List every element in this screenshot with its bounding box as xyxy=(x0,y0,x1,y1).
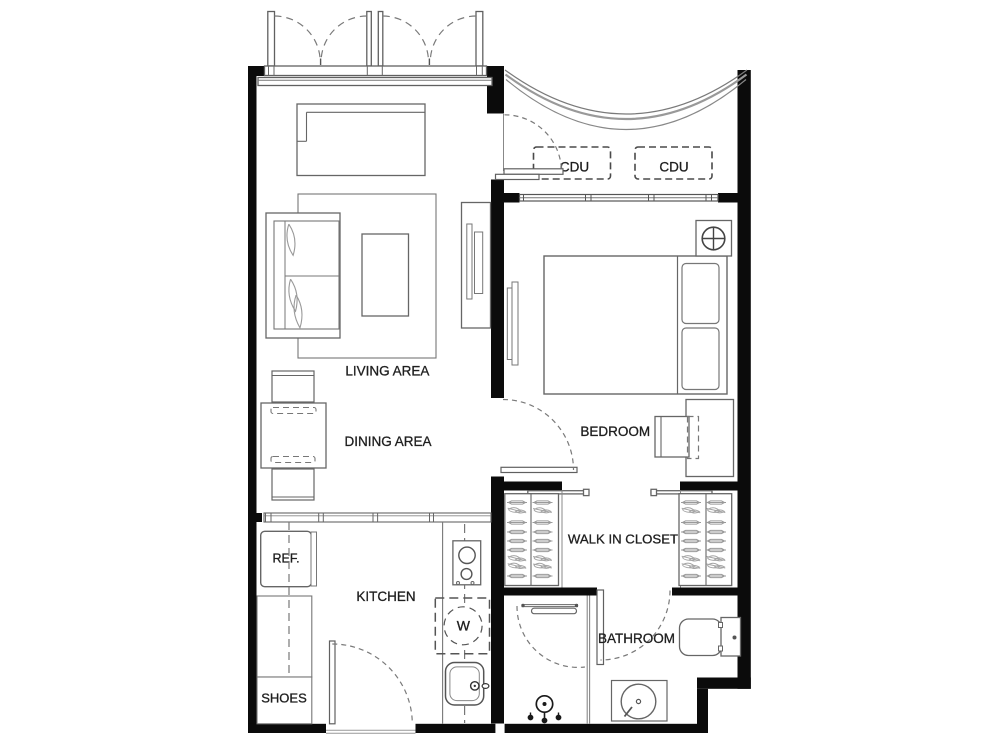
svg-text:KITCHEN: KITCHEN xyxy=(356,589,415,604)
svg-text:LIVING AREA: LIVING AREA xyxy=(345,363,429,378)
svg-text:W: W xyxy=(457,618,471,634)
svg-text:CDU: CDU xyxy=(560,160,589,175)
svg-text:SHOES: SHOES xyxy=(261,691,307,706)
svg-text:CDU: CDU xyxy=(659,160,688,175)
svg-text:DINING AREA: DINING AREA xyxy=(344,434,431,449)
svg-text:BATHROOM: BATHROOM xyxy=(598,631,675,646)
svg-text:BEDROOM: BEDROOM xyxy=(580,424,650,439)
svg-text:REF.: REF. xyxy=(272,552,299,566)
svg-text:WALK IN CLOSET: WALK IN CLOSET xyxy=(568,532,678,547)
